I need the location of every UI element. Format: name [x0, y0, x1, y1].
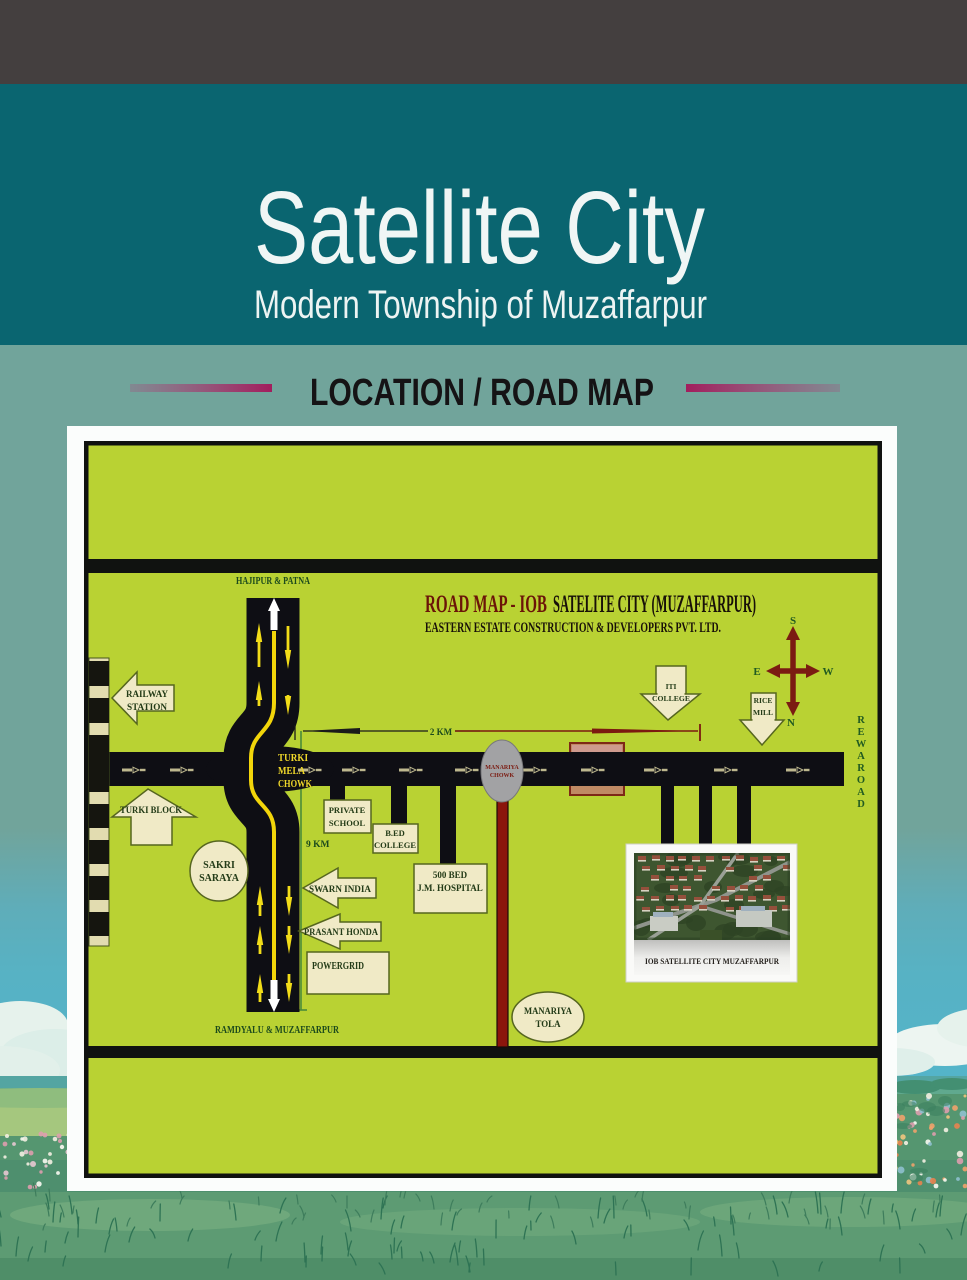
- svg-text:RAMDYALU & MUZAFFARPUR: RAMDYALU & MUZAFFARPUR: [215, 1025, 339, 1036]
- svg-text:500 BED: 500 BED: [433, 870, 468, 880]
- svg-text:J.M. HOSPITAL: J.M. HOSPITAL: [417, 883, 483, 893]
- svg-text:O: O: [857, 775, 865, 786]
- svg-text:TURKI: TURKI: [278, 752, 308, 764]
- svg-text:N: N: [787, 717, 795, 729]
- svg-text:POWERGRID: POWERGRID: [312, 961, 364, 972]
- svg-text:9 KM: 9 KM: [306, 840, 330, 850]
- svg-text:SCHOOL: SCHOOL: [329, 818, 366, 828]
- svg-text:Satellite City: Satellite City: [254, 170, 705, 285]
- svg-text:B.ED: B.ED: [385, 828, 405, 838]
- svg-text:MILL: MILL: [753, 708, 773, 717]
- svg-text:COLLEGE: COLLEGE: [652, 694, 690, 703]
- svg-text:MELA: MELA: [278, 765, 305, 777]
- svg-text:ITI: ITI: [666, 682, 677, 691]
- svg-text:E: E: [753, 666, 760, 678]
- svg-text:PRIVATE: PRIVATE: [329, 805, 366, 815]
- svg-text:RAILWAY: RAILWAY: [126, 689, 168, 699]
- svg-text:A: A: [857, 751, 865, 762]
- svg-text:RICE: RICE: [754, 696, 773, 705]
- svg-text:EASTERN ESTATE CONSTRUCTION &: EASTERN ESTATE CONSTRUCTION & DEVELOPERS…: [425, 620, 721, 636]
- svg-text:A: A: [857, 787, 865, 798]
- svg-text:SAKRI: SAKRI: [203, 860, 235, 871]
- svg-text:MANARIYA: MANARIYA: [524, 1007, 572, 1017]
- svg-text:2 KM: 2 KM: [430, 727, 453, 737]
- svg-text:SATELITE CITY (MUZAFFARPUR): SATELITE CITY (MUZAFFARPUR): [553, 591, 756, 618]
- svg-text:ROAD MAP - IOB: ROAD MAP - IOB: [425, 591, 547, 618]
- svg-text:LOCATION / ROAD MAP: LOCATION / ROAD MAP: [310, 372, 654, 414]
- svg-text:MANARIYA: MANARIYA: [485, 765, 519, 771]
- svg-text:R: R: [857, 763, 865, 774]
- svg-text:PRASANT HONDA: PRASANT HONDA: [304, 927, 378, 937]
- svg-text:SWARN INDIA: SWARN INDIA: [309, 884, 372, 894]
- svg-text:HAJIPUR & PATNA: HAJIPUR & PATNA: [236, 576, 310, 587]
- svg-text:COLLEGE: COLLEGE: [374, 840, 416, 850]
- svg-text:E: E: [857, 727, 864, 738]
- svg-text:IOB SATELLITE CITY MUZAFFARPUR: IOB SATELLITE CITY MUZAFFARPUR: [645, 957, 779, 966]
- svg-text:S: S: [790, 615, 796, 627]
- svg-text:STATION: STATION: [127, 702, 168, 712]
- svg-text:W: W: [823, 666, 834, 678]
- svg-text:Modern Township of Muzaffarpur: Modern Township of Muzaffarpur: [254, 283, 707, 327]
- svg-text:TOLA: TOLA: [536, 1020, 561, 1030]
- svg-text:R: R: [857, 715, 865, 726]
- svg-text:SARAYA: SARAYA: [199, 873, 240, 884]
- svg-text:TURKI BLOCK: TURKI BLOCK: [120, 805, 182, 815]
- svg-text:CHOWK: CHOWK: [278, 778, 312, 790]
- svg-text:D: D: [857, 799, 865, 810]
- svg-text:CHOWK: CHOWK: [490, 773, 515, 779]
- svg-text:W: W: [856, 739, 867, 750]
